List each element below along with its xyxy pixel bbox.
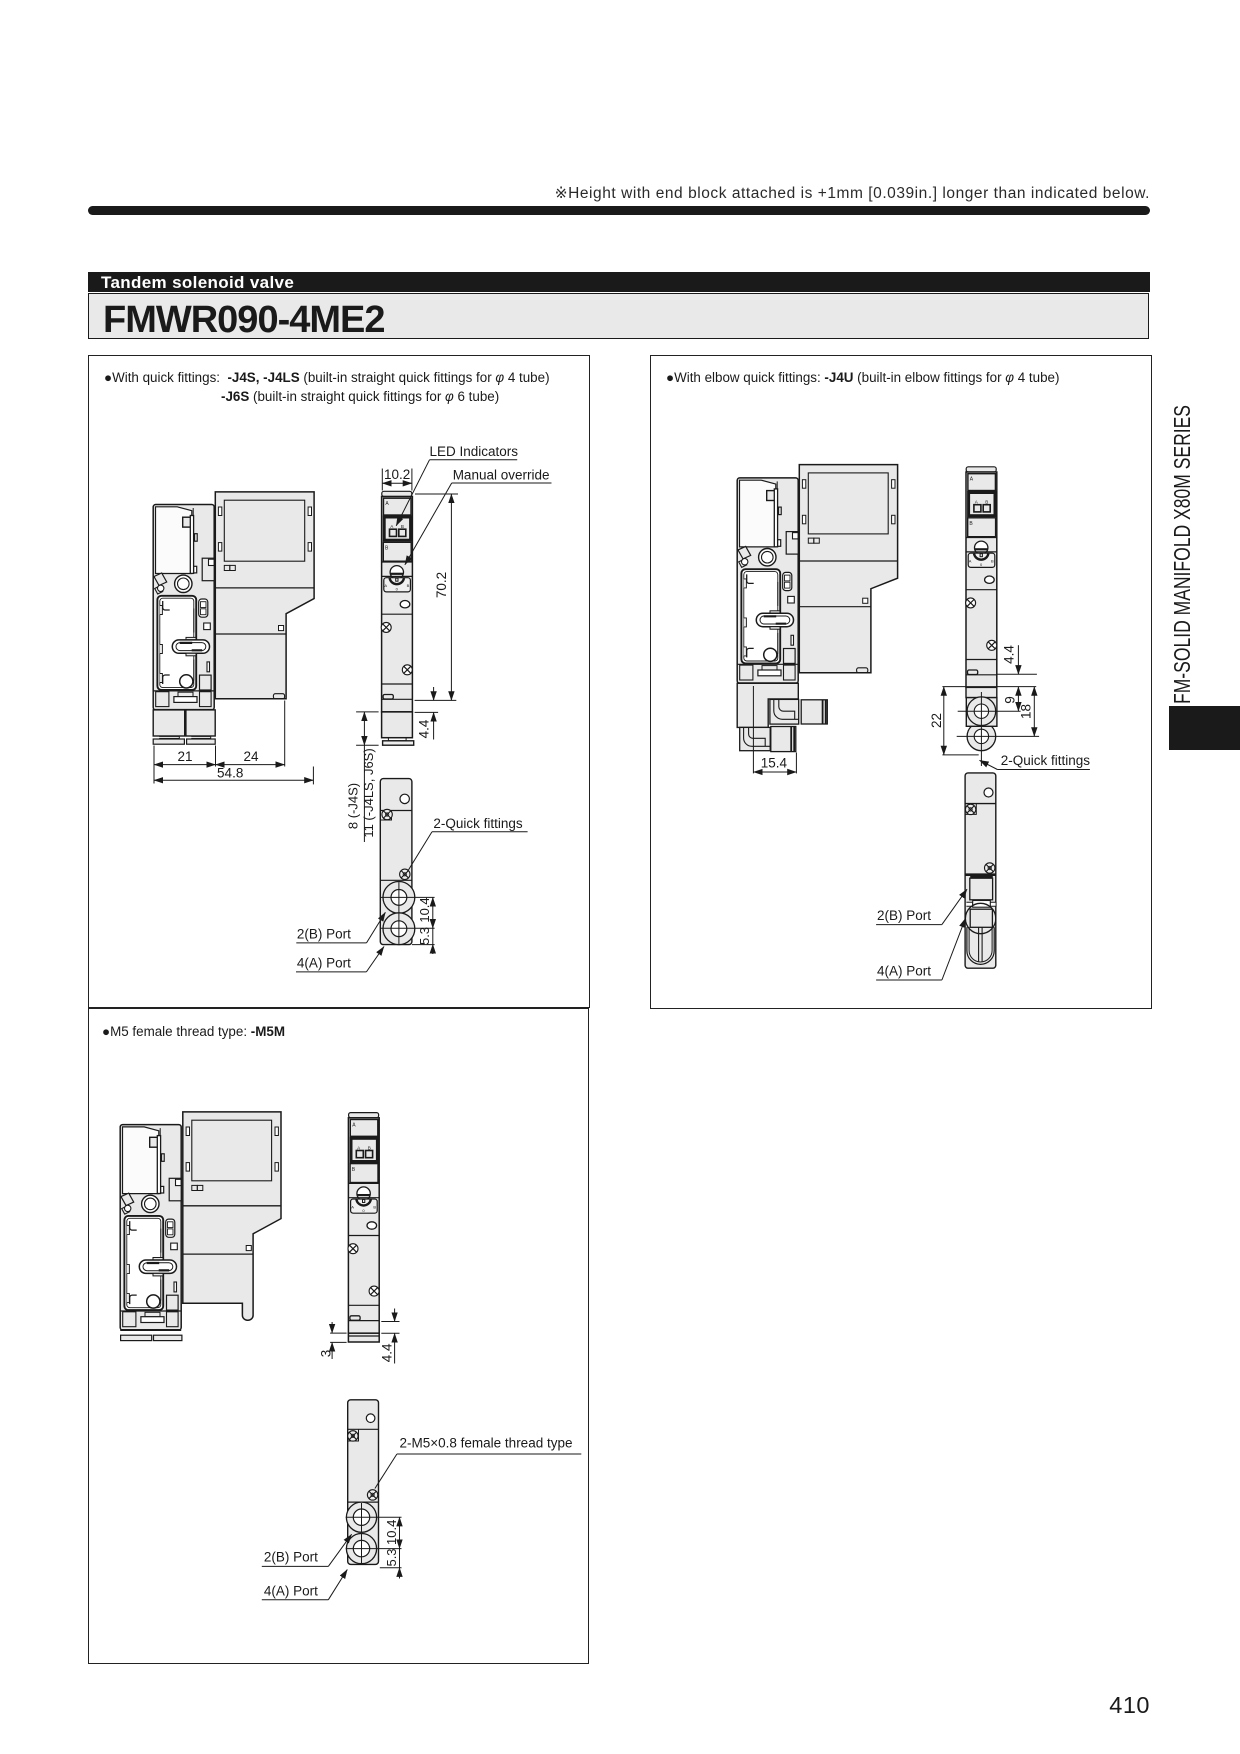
svg-text:3: 3: [318, 1350, 333, 1358]
svg-text:21: 21: [177, 749, 192, 764]
svg-text:2(B) Port: 2(B) Port: [297, 926, 351, 941]
svg-text:2-Quick fittings: 2-Quick fittings: [433, 816, 523, 831]
svg-text:4.4: 4.4: [1002, 645, 1017, 664]
svg-text:10.2: 10.2: [384, 467, 410, 482]
svg-text:11 (-J4LS, J6S): 11 (-J4LS, J6S): [361, 748, 376, 837]
svg-text:4.4: 4.4: [417, 719, 432, 738]
svg-text:4(A) Port: 4(A) Port: [877, 964, 931, 979]
svg-text:10.4: 10.4: [417, 897, 432, 922]
svg-text:15.4: 15.4: [761, 756, 788, 771]
svg-text:18: 18: [1018, 704, 1033, 719]
svg-text:2-Quick fittings: 2-Quick fittings: [1001, 753, 1091, 768]
svg-text:24: 24: [243, 749, 259, 764]
svg-text:2-M5×0.8 female thread type: 2-M5×0.8 female thread type: [400, 1436, 573, 1451]
svg-text:5.3: 5.3: [417, 927, 432, 945]
svg-text:8 (-J4S): 8 (-J4S): [346, 783, 361, 829]
svg-text:5.3: 5.3: [384, 1548, 399, 1566]
svg-text:4.4: 4.4: [380, 1343, 395, 1362]
svg-text:10.4: 10.4: [384, 1520, 399, 1545]
svg-text:9: 9: [1002, 696, 1017, 704]
svg-text:Manual override: Manual override: [453, 468, 550, 483]
svg-text:2(B) Port: 2(B) Port: [877, 908, 931, 923]
svg-text:54.8: 54.8: [217, 765, 243, 780]
svg-text:4(A) Port: 4(A) Port: [297, 955, 351, 970]
svg-text:22: 22: [929, 713, 944, 728]
svg-text:4(A) Port: 4(A) Port: [264, 1584, 318, 1599]
svg-text:LED Indicators: LED Indicators: [430, 444, 519, 459]
svg-text:70.2: 70.2: [434, 572, 449, 598]
svg-text:2(B) Port: 2(B) Port: [264, 1549, 318, 1564]
